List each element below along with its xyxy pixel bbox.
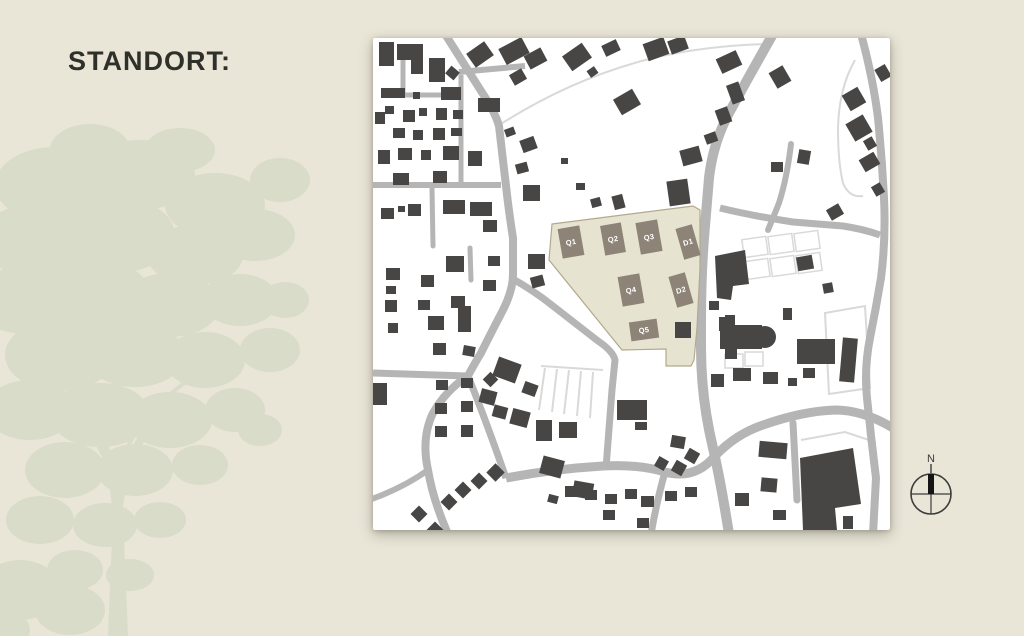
building [822,282,834,294]
building [763,372,778,384]
building [381,208,394,219]
building [458,306,471,332]
building [716,50,743,74]
building [466,41,494,68]
building [436,380,448,390]
building [839,337,858,382]
building [562,43,592,72]
building [435,403,447,414]
building [760,477,777,492]
road [470,248,471,280]
building [530,275,545,289]
building [408,204,421,216]
building [428,316,444,330]
parcel-outline [770,255,796,276]
building [859,152,881,173]
building [603,510,615,520]
compass-needle [928,474,934,494]
building [797,339,835,364]
building [725,349,737,359]
building [483,220,497,232]
building [461,425,473,437]
building [561,158,568,164]
building [488,256,500,266]
site-map: Q1Q2Q3D1Q4D2Q5 [373,38,890,530]
building [725,315,735,325]
building [433,171,447,183]
slide: STANDORT: Q1Q2Q3D1Q4D2Q5 N [0,0,1024,636]
building [611,194,625,210]
road [432,188,433,246]
building [509,68,527,85]
building [665,491,677,501]
parcel-outline [745,352,763,366]
building [670,435,686,449]
building [547,494,559,504]
building [421,275,434,287]
building [461,378,473,388]
building [445,66,460,81]
building [398,148,412,160]
parcel-outline [742,236,768,257]
building [613,89,641,116]
building [492,404,509,419]
building [709,301,719,310]
site-map-svg: Q1Q2Q3D1Q4D2Q5 [373,38,890,530]
building [685,487,697,497]
building [443,200,465,214]
building [451,128,462,136]
building [643,38,670,61]
site-plot-label: Q1 [565,237,577,248]
building [470,202,492,216]
building [441,494,458,511]
building [461,401,473,412]
building [845,114,872,141]
building [797,149,811,165]
building [411,506,428,523]
building [471,473,488,490]
building [666,179,690,207]
site-plot: Q5 [629,319,659,342]
parking-line [552,369,557,412]
building [536,420,552,441]
building [735,493,749,506]
building [863,136,877,151]
building [590,197,602,208]
building [398,206,405,212]
building [559,422,577,438]
building [601,39,621,57]
building [565,486,578,497]
building [641,496,654,507]
building [393,128,405,138]
building [386,286,396,294]
building [521,381,538,397]
building [715,250,749,300]
building [429,58,445,82]
building [385,106,394,114]
building [498,38,529,65]
building [483,280,496,291]
site-plot-label: Q3 [643,232,655,243]
building [523,185,540,201]
building [769,65,792,89]
road [373,470,428,500]
parking-line [564,370,569,414]
parking-line [541,366,603,370]
building [413,92,420,99]
building [385,300,397,312]
building [478,98,500,112]
building [509,408,531,428]
building [386,268,400,280]
building [783,308,792,320]
building [528,254,545,269]
building [843,516,853,529]
building [625,489,637,499]
building [413,130,423,140]
building [441,87,461,100]
building [635,422,647,430]
parcel-outline [768,233,794,254]
building [433,128,445,140]
site-plot-label: Q5 [638,325,650,335]
building [375,112,385,124]
road [793,423,797,500]
building [796,255,814,272]
building [617,400,647,420]
building [421,150,431,160]
building [788,378,797,386]
building [443,146,459,160]
building [453,110,463,119]
tree-silhouette [0,0,340,636]
building [468,151,482,166]
building [576,183,585,190]
building [381,88,405,98]
building [436,108,447,120]
building [435,426,447,437]
building [675,322,691,338]
page-title: STANDORT: [68,46,231,77]
building [378,150,390,164]
building [637,518,649,528]
building [418,300,430,310]
building [679,146,702,167]
parking-line [577,371,581,416]
building [803,368,815,378]
building [773,510,786,520]
building [684,448,700,464]
site-plot-label: Q2 [607,234,619,245]
building [826,203,844,220]
building [433,343,446,355]
building [388,323,398,333]
road [861,38,885,530]
building [515,162,529,175]
parking-line [539,368,545,410]
building [605,494,617,504]
building [462,345,476,357]
building [373,383,387,405]
building [455,482,472,499]
building [379,42,394,66]
parcel-outline [794,230,820,251]
building [874,64,890,82]
building [419,108,427,116]
building [733,368,751,381]
building [446,256,464,272]
building [585,490,597,500]
building [519,136,538,153]
road [373,373,468,376]
building [393,173,409,185]
building [754,326,776,348]
building [711,374,724,387]
building [771,162,783,172]
building [403,110,415,122]
site-plot-label: Q4 [625,285,638,296]
building [758,441,787,459]
building [842,87,867,112]
compass-north-label: N [927,453,935,465]
parking-line [590,372,593,418]
building [504,127,516,138]
compass: N [904,450,958,520]
road [720,208,880,235]
